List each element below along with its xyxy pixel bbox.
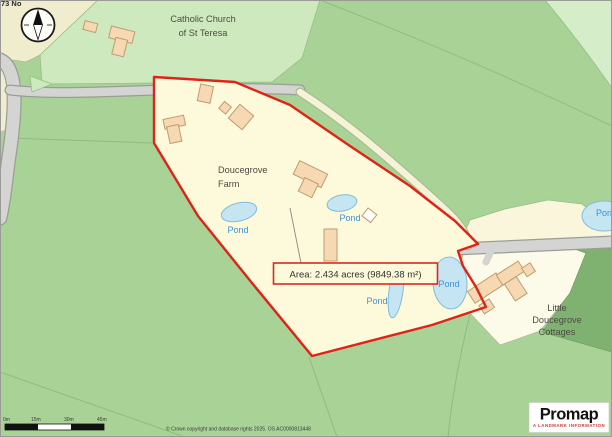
church-label-line1: Catholic Church <box>170 14 235 24</box>
farm-label-line1: Doucegrove <box>218 165 268 175</box>
scale-tick-2: 30m <box>64 417 74 423</box>
pond-label-4: Pond <box>438 279 459 289</box>
pond-label-1: Pond <box>227 225 248 235</box>
cottages-label-line3: Cottages <box>539 327 576 337</box>
scale-tick-3: 45m <box>97 417 107 423</box>
corner-text: 73 No <box>1 0 22 8</box>
road-right <box>456 242 612 249</box>
pond-label-5: Pond <box>596 208 612 218</box>
north-arrow-icon <box>22 9 55 42</box>
annotation-area-text: Area: 2.434 acres (9849.38 m²) <box>289 270 421 281</box>
farm-label-line2: Farm <box>218 179 240 189</box>
pond-label-3: Pond <box>366 296 387 306</box>
cottages-label-line2: Doucegrove <box>532 315 582 325</box>
copyright-text: © Crown copyright and database rights 20… <box>166 426 311 433</box>
pond-label-2: Pond <box>339 213 360 223</box>
promap-logo-text: Promap <box>540 406 599 424</box>
church-label-line2: of St Teresa <box>179 28 229 38</box>
cottages-label-line1: Little <box>547 303 566 313</box>
promap-logo: Promap A LANDMARK INFORMATION <box>529 403 609 433</box>
scale-tick-1: 15m <box>31 417 41 423</box>
farm-building-1 <box>197 84 213 103</box>
barn <box>324 229 337 261</box>
map-canvas[interactable]: Catholic Church of St Teresa Doucegrove … <box>0 0 612 437</box>
scale-tick-0: 0m <box>3 417 10 423</box>
promap-logo-tagline: A LANDMARK INFORMATION <box>533 423 605 428</box>
